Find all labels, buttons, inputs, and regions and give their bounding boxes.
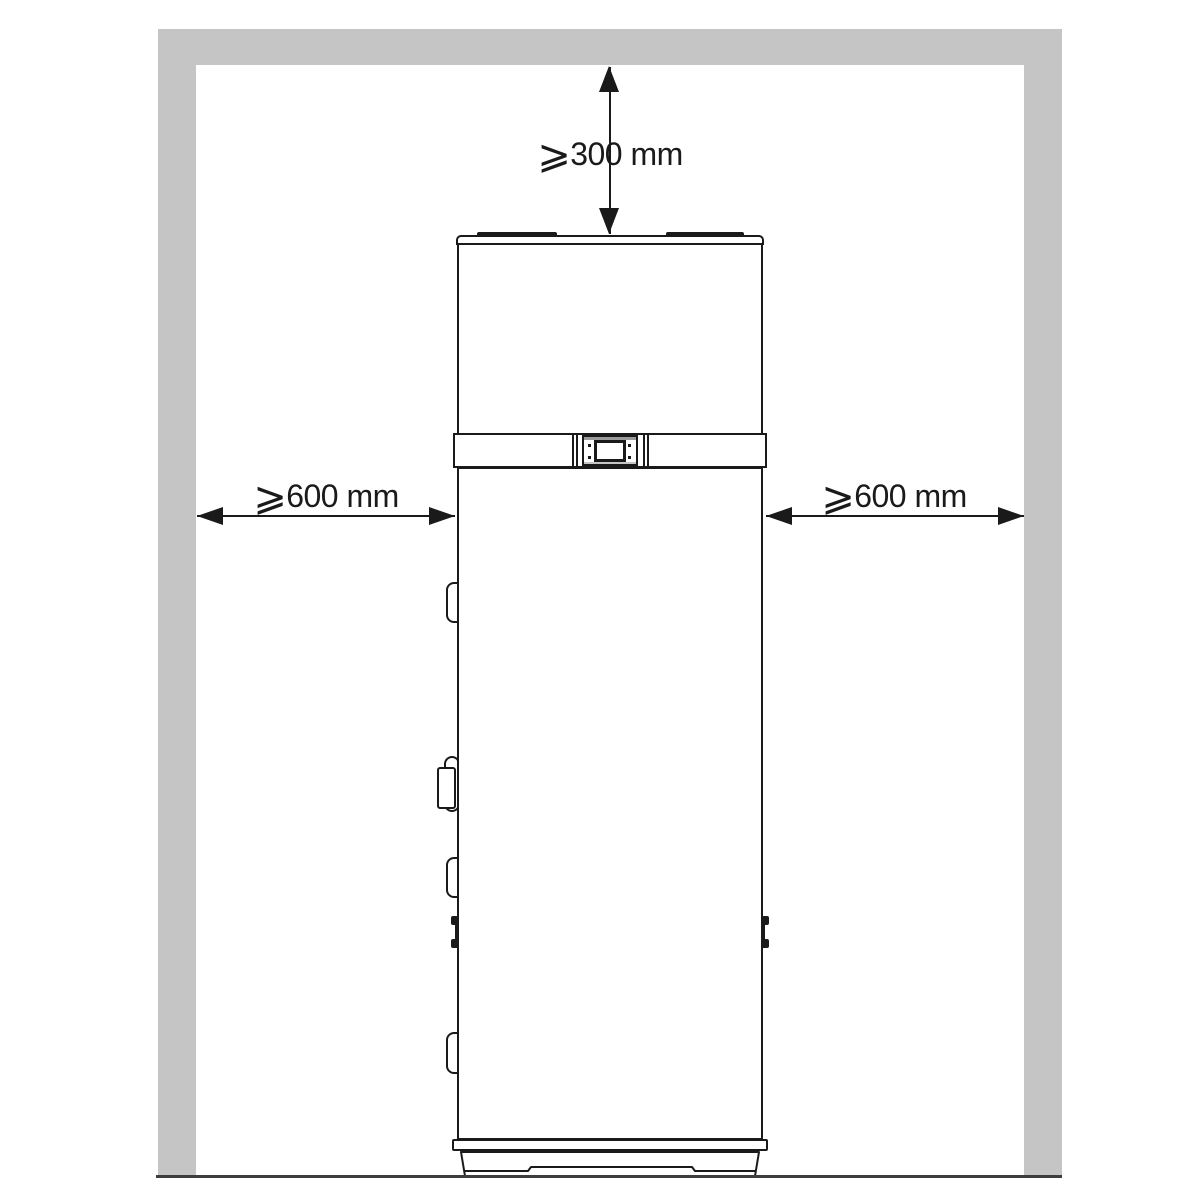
panel-button-dot bbox=[628, 444, 631, 447]
greater-equal-icon: ⩾ bbox=[537, 132, 570, 178]
control-band-joint-right bbox=[643, 435, 649, 466]
greater-equal-icon: ⩾ bbox=[821, 474, 854, 520]
wall-left bbox=[158, 29, 196, 1177]
base-trim-ring bbox=[452, 1139, 768, 1151]
left-clearance-value: 600 mm bbox=[286, 478, 399, 514]
floor-line bbox=[156, 1175, 1062, 1178]
wall-right bbox=[1024, 29, 1062, 1177]
tank-body bbox=[457, 467, 763, 1140]
display-screen bbox=[594, 440, 626, 462]
arrowhead-up-icon bbox=[599, 66, 619, 92]
hinge-clip-icon bbox=[451, 916, 458, 925]
top-vent-slot-left bbox=[477, 232, 557, 237]
top-clearance-value: 300 mm bbox=[570, 136, 683, 172]
wall-top bbox=[158, 29, 1062, 65]
right-clearance-label: ⩾600 mm bbox=[764, 476, 1024, 516]
left-clearance-label: ⩾600 mm bbox=[196, 476, 456, 516]
control-band-joint-left bbox=[572, 435, 578, 466]
greater-equal-icon: ⩾ bbox=[253, 474, 286, 520]
right-clearance-value: 600 mm bbox=[854, 478, 967, 514]
top-clearance-label: ⩾300 mm bbox=[480, 134, 740, 174]
panel-button-dot bbox=[588, 456, 591, 459]
hinge-clip-icon bbox=[762, 939, 769, 948]
hinge-clip-icon bbox=[762, 916, 769, 925]
heat-pump-module bbox=[457, 243, 763, 435]
top-vent-slot-right bbox=[666, 232, 744, 237]
hinge-clip-icon bbox=[451, 939, 458, 948]
junction-box bbox=[437, 767, 456, 809]
arrowhead-down-icon bbox=[599, 208, 619, 234]
clearance-diagram: ⩾300 mm ⩾600 mm ⩾600 mm bbox=[0, 0, 1200, 1200]
panel-button-dot bbox=[628, 456, 631, 459]
panel-button-dot bbox=[588, 444, 591, 447]
